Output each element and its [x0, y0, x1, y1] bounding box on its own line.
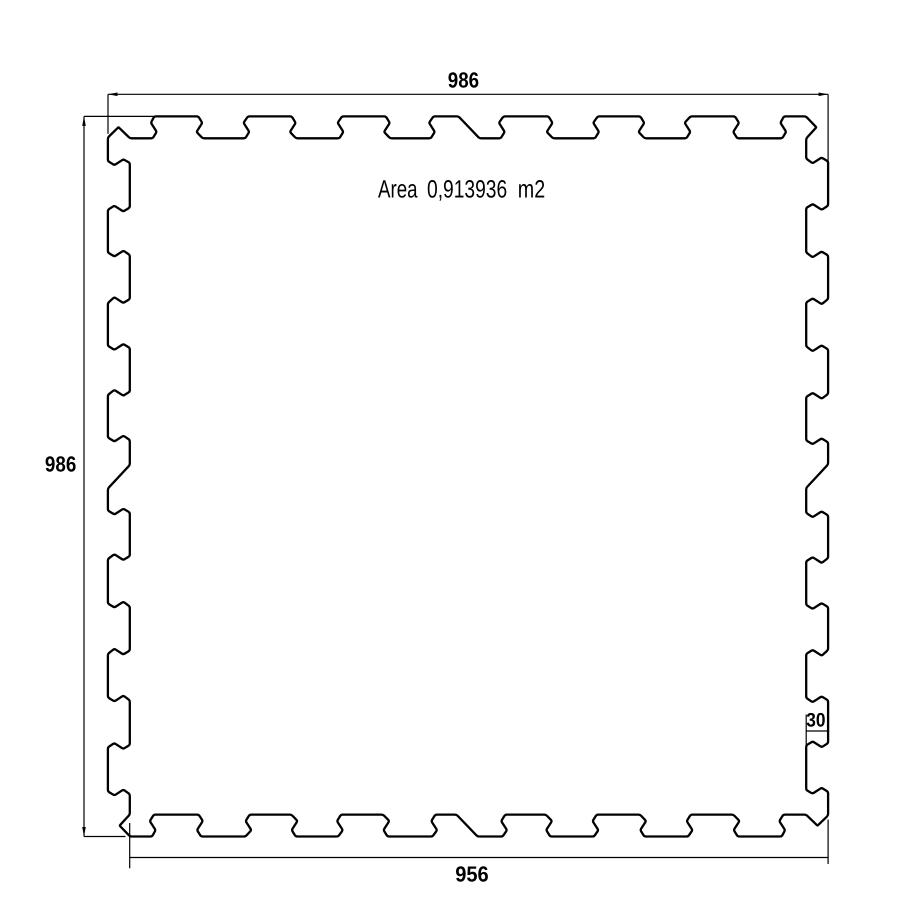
svg-text:Area: Area	[378, 176, 418, 204]
svg-text:m2: m2	[518, 176, 545, 204]
svg-text:986: 986	[45, 452, 76, 477]
svg-text:30: 30	[806, 709, 825, 731]
svg-text:0,913936: 0,913936	[427, 176, 507, 204]
svg-text:986: 986	[448, 67, 479, 92]
svg-text:956: 956	[455, 861, 489, 886]
